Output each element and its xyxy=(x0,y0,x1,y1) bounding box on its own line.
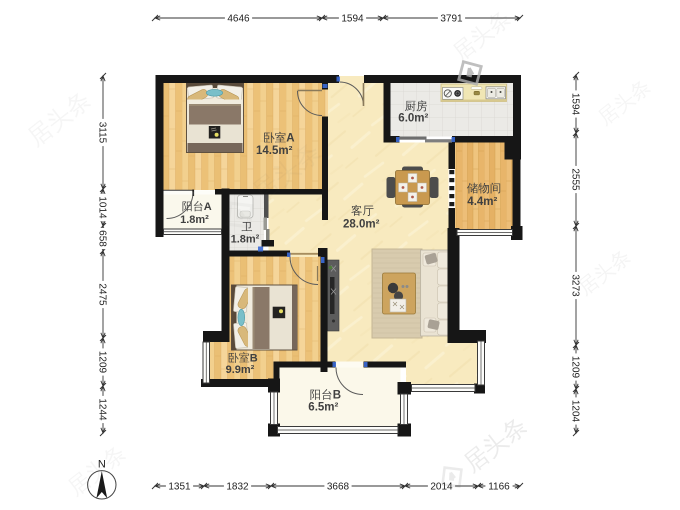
svg-text:6.5m²: 6.5m² xyxy=(308,402,338,414)
svg-text:2555: 2555 xyxy=(570,168,581,191)
svg-text:1209: 1209 xyxy=(97,351,108,374)
svg-text:28.0m²: 28.0m² xyxy=(343,219,380,231)
svg-text:B: B xyxy=(250,353,258,365)
svg-text:3115: 3115 xyxy=(97,122,108,144)
svg-text:B: B xyxy=(333,390,341,402)
svg-text:1.8m²: 1.8m² xyxy=(180,214,209,226)
svg-text:4.4m²: 4.4m² xyxy=(467,196,497,208)
svg-text:1351: 1351 xyxy=(168,482,191,493)
svg-text:1594: 1594 xyxy=(570,93,581,116)
svg-text:1.8m²: 1.8m² xyxy=(231,234,260,246)
svg-text:14.5m²: 14.5m² xyxy=(256,145,293,157)
svg-text:1244: 1244 xyxy=(97,398,108,421)
svg-text:658: 658 xyxy=(97,230,108,247)
svg-text:1832: 1832 xyxy=(226,482,249,493)
svg-text:1594: 1594 xyxy=(341,14,364,25)
svg-text:4646: 4646 xyxy=(227,14,250,25)
svg-text:1166: 1166 xyxy=(488,482,510,493)
svg-text:1204: 1204 xyxy=(570,400,581,423)
svg-text:9.9m²: 9.9m² xyxy=(226,364,255,376)
svg-text:3791: 3791 xyxy=(440,14,463,25)
svg-text:1209: 1209 xyxy=(570,356,581,379)
svg-text:2475: 2475 xyxy=(97,283,108,306)
svg-text:3273: 3273 xyxy=(570,274,581,297)
svg-text:3668: 3668 xyxy=(327,482,350,493)
svg-text:A: A xyxy=(286,133,294,145)
svg-text:1014: 1014 xyxy=(97,196,108,219)
svg-text:A: A xyxy=(204,201,212,213)
svg-text:6.0m²: 6.0m² xyxy=(398,113,428,125)
